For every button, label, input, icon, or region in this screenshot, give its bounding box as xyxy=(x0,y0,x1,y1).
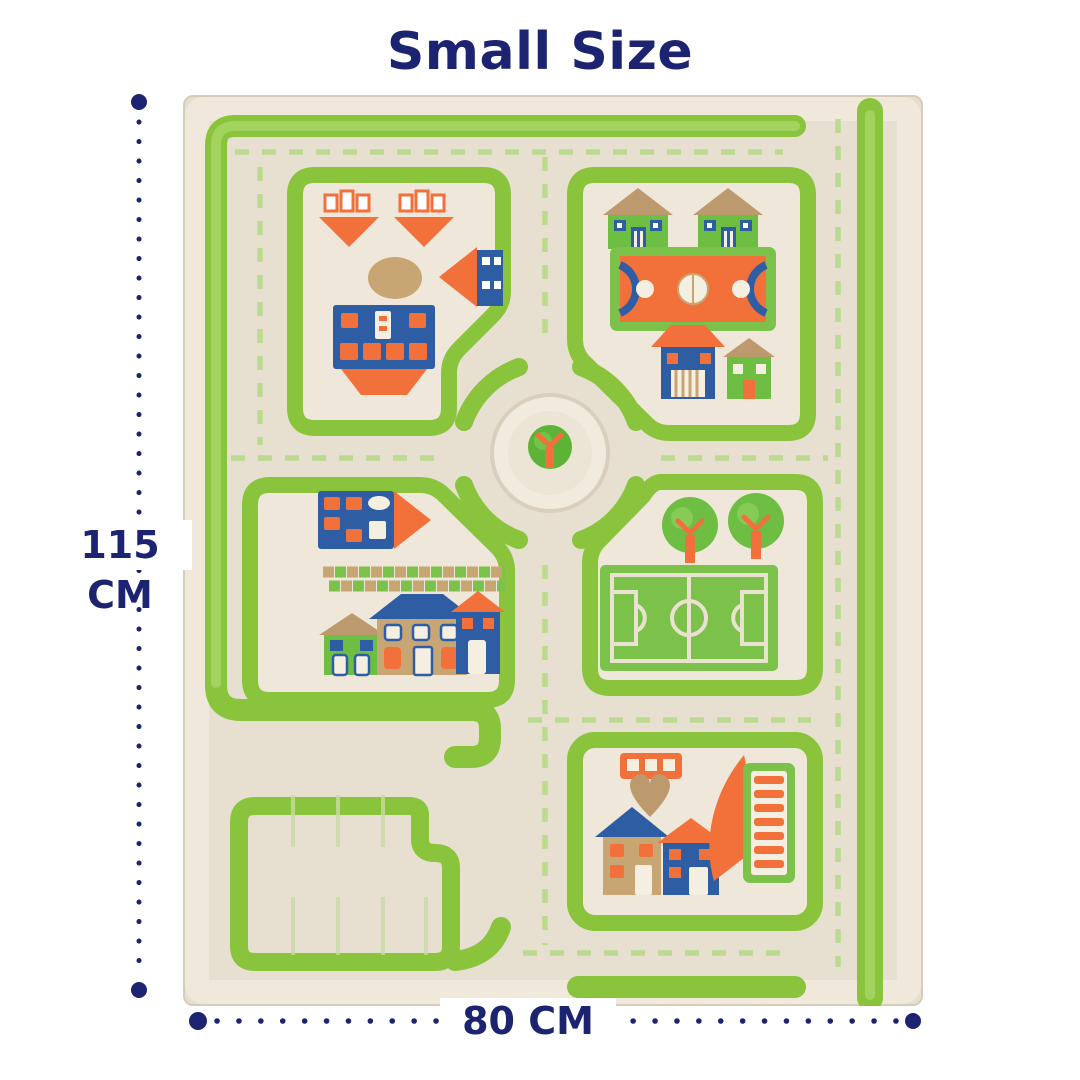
width-dimension-label: 80 CM xyxy=(440,998,616,1044)
awning-icon xyxy=(620,753,682,779)
dimension-endpoint-dot xyxy=(131,982,147,998)
soccer-field-icon xyxy=(600,565,778,671)
roundabout-tree-icon xyxy=(528,425,572,469)
blue-garage-house-icon xyxy=(651,325,725,399)
dimension-endpoint-dot xyxy=(131,94,147,110)
play-rug-image xyxy=(183,95,923,1006)
dimension-endpoint-dot xyxy=(189,1012,207,1030)
product-size-infographic: Small Size xyxy=(0,0,1080,1080)
pond-icon xyxy=(368,257,422,299)
striped-tower-icon xyxy=(743,763,795,883)
play-rug-svg xyxy=(183,95,923,1006)
height-dimension-label: 115 CM xyxy=(48,520,192,570)
basketball-court-icon xyxy=(610,247,776,331)
page-title: Small Size xyxy=(0,22,1080,82)
dimension-endpoint-dot xyxy=(905,1013,921,1029)
